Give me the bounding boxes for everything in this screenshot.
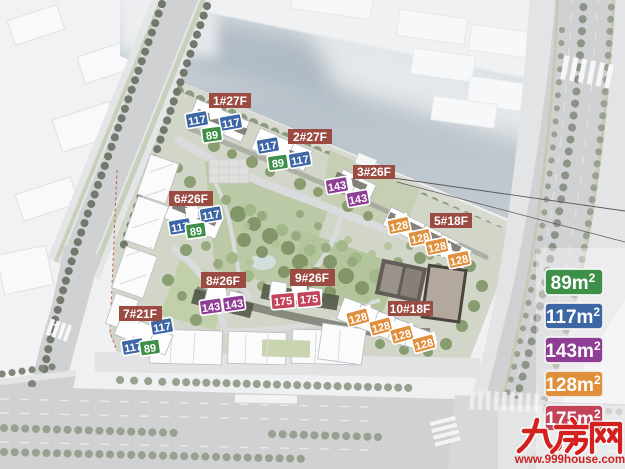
svg-text:89: 89 (189, 225, 203, 239)
svg-text:175: 175 (299, 293, 318, 307)
svg-text:10#18F: 10#18F (390, 302, 431, 316)
svg-text:117m2: 117m2 (546, 305, 601, 328)
svg-text:5#18F: 5#18F (434, 214, 468, 228)
svg-text:89: 89 (205, 129, 219, 143)
svg-text:128m2: 128m2 (545, 373, 601, 396)
svg-text:6#26F: 6#26F (174, 192, 208, 206)
svg-text:3#26F: 3#26F (357, 165, 391, 179)
svg-text:143: 143 (224, 298, 244, 312)
svg-text:2#27F: 2#27F (293, 130, 327, 144)
svg-text:9#26F: 9#26F (295, 271, 329, 285)
svg-text:89: 89 (143, 342, 157, 356)
svg-text:8#26F: 8#26F (206, 274, 240, 288)
svg-text:175: 175 (273, 295, 292, 309)
svg-text:www.999house.com: www.999house.com (514, 453, 625, 466)
svg-text:1#27F: 1#27F (213, 94, 247, 108)
svg-text:143: 143 (201, 301, 221, 315)
svg-text:143m2: 143m2 (545, 339, 601, 362)
svg-text:89: 89 (271, 157, 285, 171)
svg-text:7#21F: 7#21F (123, 307, 157, 321)
